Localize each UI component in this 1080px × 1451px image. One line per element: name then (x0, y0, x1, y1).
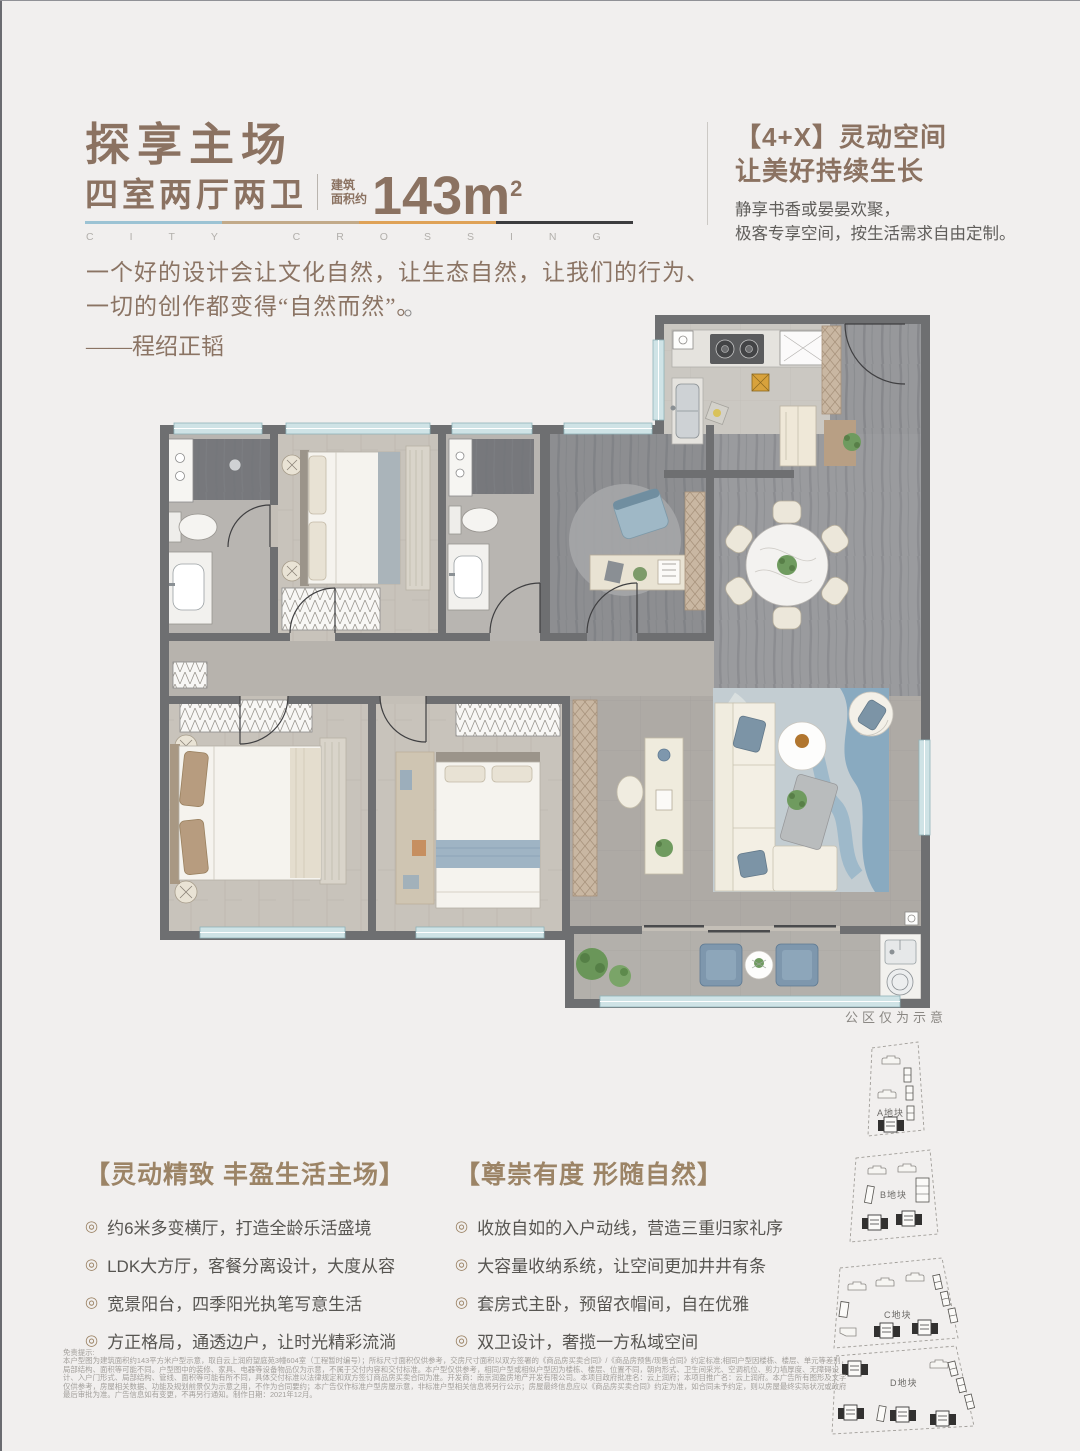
plan-marker (405, 310, 411, 316)
area-label: 建筑 面积约 (331, 178, 367, 206)
feature-item: ◎宽景阳台，四季阳光执笔写意生活 (85, 1283, 455, 1321)
feature-title: 【灵动精致 丰盈生活主场】 (85, 1155, 455, 1191)
bullseye-icon: ◎ (455, 1255, 468, 1273)
hallway-floor (169, 641, 714, 696)
site-plan: A地块 B地块 C地块 (826, 1030, 998, 1444)
washer (887, 969, 913, 995)
sofa-chaise (773, 846, 837, 891)
subtitle-separator (317, 174, 318, 210)
side-chair (617, 776, 643, 808)
feature-list-left: 【灵动精致 丰盈生活主场】 ◎约6米多变横厅，打造全龄乐活盛境 ◎LDK大方厅，… (85, 1155, 455, 1359)
area-value: 143m2 (372, 163, 522, 222)
flex-space-title: 【4+X】灵动空间 让美好持续生长 (735, 120, 1065, 188)
centerpiece-plant (777, 555, 797, 575)
headboard (170, 744, 180, 884)
bullseye-icon: ◎ (455, 1331, 468, 1349)
flex-space-panel: 【4+X】灵动空间 让美好持续生长 静享书香或晏晏欢聚， 极客专享空间，按生活需… (735, 120, 1065, 246)
block-label: B地块 (880, 1189, 907, 1200)
blanket (290, 748, 321, 878)
block-D: D地块 (832, 1346, 975, 1434)
right-panel-divider (707, 122, 708, 225)
divider-segment-tan (222, 221, 359, 224)
feature-item: ◎套房式主卧，预留衣帽间，自在优雅 (455, 1283, 825, 1321)
toilet (179, 514, 217, 540)
bullseye-icon: ◎ (85, 1331, 98, 1349)
area-superscript: 2 (510, 176, 522, 201)
plan-note: 公区仅为示意 (845, 1007, 947, 1026)
headboard (436, 752, 540, 763)
floor-plan (140, 300, 950, 1015)
bullseye-icon: ◎ (85, 1255, 98, 1273)
feature-title: 【尊崇有度 形随自然】 (455, 1155, 825, 1191)
blanket (378, 452, 400, 584)
blanket (436, 840, 540, 868)
feature-list-right: 【尊崇有度 形随自然】 ◎收放自如的入户动线，营造三重归家礼序 ◎大容量收纳系统… (455, 1155, 825, 1359)
block-C: C地块 (834, 1258, 958, 1348)
header-divider (85, 221, 633, 224)
page-top-edge (0, 0, 1080, 1)
bullseye-icon: ◎ (85, 1293, 98, 1311)
feature-item: ◎大容量收纳系统，让空间更加井井有条 (455, 1245, 825, 1283)
page-title: 探享主场 (85, 108, 293, 173)
divider-segment-orange (359, 221, 496, 224)
bullseye-icon: ◎ (455, 1293, 468, 1311)
plant (576, 948, 608, 980)
bullseye-icon: ◎ (85, 1217, 98, 1235)
toilet (462, 508, 498, 532)
flex-space-body: 静享书香或晏晏欢聚， 极客专享空间，按生活需求自由定制。 (735, 198, 1065, 246)
disclaimer-line: 最后审批为准。广告信息如有变更，不再另行通知。制作日期：2021年12月。 (63, 1391, 808, 1399)
feature-item: ◎LDK大方厅，客餐分离设计，大度从容 (85, 1245, 455, 1283)
watermark-city-crossing: CITY CROSSING (86, 231, 646, 243)
feature-item: ◎约6米多变横厅，打造全龄乐活盛境 (85, 1207, 455, 1245)
block-label: C地块 (884, 1309, 912, 1320)
plant (787, 790, 807, 810)
page-left-edge (0, 0, 2, 1451)
feature-item: ◎收放自如的入户动线，营造三重归家礼序 (455, 1207, 825, 1245)
sofa-back (715, 703, 734, 891)
bed (436, 762, 540, 908)
disclaimer: 免责提示: 本户型图为建筑面积约143平方米户型示意，取自云上润府望庭苑3幢60… (63, 1349, 808, 1399)
block-B: B地块 (850, 1150, 938, 1242)
block-label: A地块 (877, 1107, 904, 1118)
block-A: A地块 (868, 1042, 924, 1136)
layout-summary-row: 四室两厅两卫 建筑 面积约 143m2 (85, 166, 522, 218)
divider-segment-dark (496, 221, 633, 224)
layout-summary: 四室两厅两卫 (85, 168, 307, 216)
block-label: D地块 (890, 1377, 918, 1388)
divider-segment-blue (85, 221, 222, 224)
cushion (737, 850, 768, 878)
bullseye-icon: ◎ (455, 1217, 468, 1235)
